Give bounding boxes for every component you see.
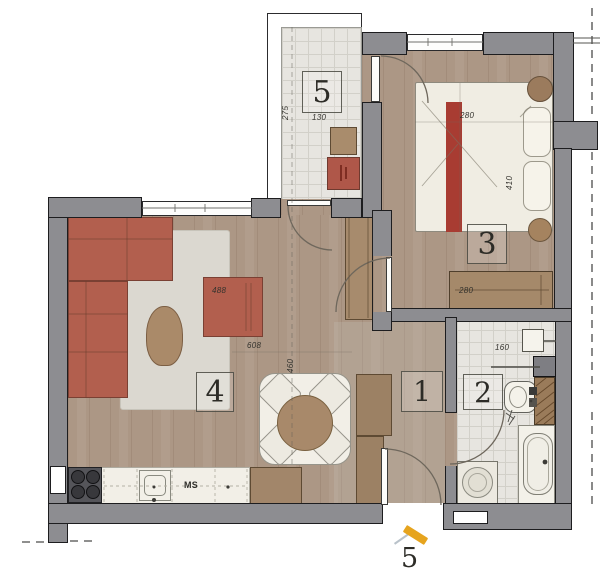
- dim-sofa-wall: 488: [212, 286, 226, 295]
- room-number-bathroom: 2: [463, 374, 503, 410]
- apartment-floor-plan: 5 3 4 1 2 275 130 280 410 280 160 488 60…: [0, 0, 600, 580]
- dim-balcony-width: 130: [312, 113, 326, 122]
- kitchen-cabinet-divisions: [104, 469, 247, 503]
- balcony-chair-mark: [341, 165, 346, 181]
- linework-overlay: [0, 0, 600, 580]
- dishwasher-label: MS: [184, 480, 198, 490]
- cabinet-lines: [349, 218, 549, 318]
- room-number-label: 2: [474, 376, 492, 409]
- room-number-label: 4: [205, 375, 224, 410]
- dim-bathroom-width: 160: [495, 343, 509, 352]
- dim-living-width: 608: [247, 341, 261, 350]
- bed-decor-lines: [422, 101, 531, 187]
- sofa-seams: [68, 218, 251, 398]
- exterior-thin-lines: [573, 38, 600, 43]
- room-number-hallway: 1: [401, 371, 443, 412]
- dim-living-depth: 460: [286, 359, 295, 373]
- dim-wardrobe-length: 280: [459, 286, 473, 295]
- dim-bedroom-width: 280: [460, 111, 474, 120]
- room-number-label: 3: [477, 227, 496, 262]
- door-swing-arcs: [288, 56, 504, 505]
- dim-bedroom-length: 410: [505, 176, 514, 190]
- dim-balcony-depth: 275: [281, 106, 290, 120]
- room-number-living: 4: [196, 372, 234, 412]
- toilet-dimension-squiggle: [506, 410, 515, 425]
- guide-lines: [232, 83, 553, 352]
- room-number-balcony: 5: [302, 71, 342, 113]
- section-marker-number: 5: [401, 543, 418, 574]
- room-number-bedroom: 3: [467, 224, 507, 264]
- duct-hatch: [536, 378, 554, 424]
- window-mullions: [142, 38, 483, 212]
- room-number-label: 1: [413, 375, 431, 408]
- stove-burners: [72, 471, 100, 499]
- room-number-label: 5: [312, 75, 331, 110]
